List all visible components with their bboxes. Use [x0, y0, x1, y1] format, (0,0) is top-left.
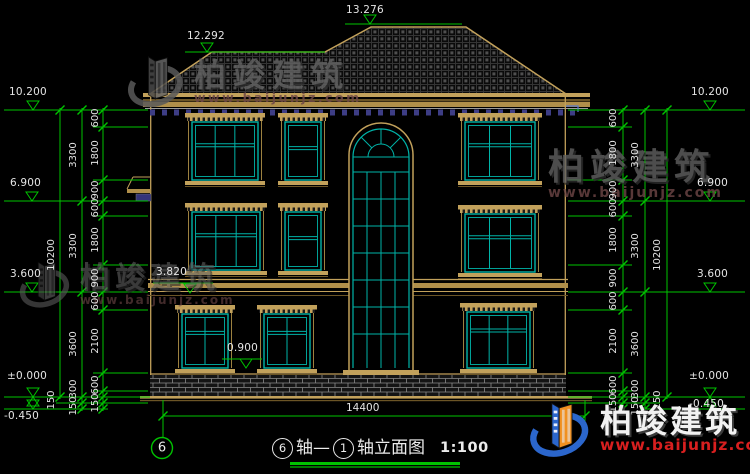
dentil-block	[426, 110, 431, 116]
title-mid-text: 轴—	[296, 440, 330, 457]
window	[185, 113, 265, 187]
level-triangle	[364, 15, 376, 24]
level-triangle	[704, 283, 716, 292]
title-scale: 1:100	[440, 441, 489, 456]
drawing-title: 6 轴— 1 轴立面图 1:100	[272, 438, 489, 459]
cad-elevation-drawing: 柏竣建筑 www.baijunjz.com 柏竣建筑 www.baijunjz.…	[0, 0, 750, 474]
window	[458, 205, 542, 279]
eave-fascia	[143, 93, 590, 112]
ground-line	[140, 396, 592, 399]
title-underline	[290, 462, 460, 465]
window	[278, 113, 328, 187]
floor-band	[148, 280, 568, 296]
window	[278, 203, 328, 277]
dentil-block	[414, 110, 419, 116]
dentil-block	[354, 110, 359, 116]
dentil-block	[546, 110, 551, 116]
dentil-block	[450, 110, 455, 116]
title-axis-a-bubble: 6	[272, 438, 293, 459]
level-triangle	[27, 101, 39, 110]
dentil-block	[438, 110, 443, 116]
arch-sill	[343, 370, 419, 375]
title-name-text: 轴立面图	[357, 440, 425, 457]
arch-window	[343, 123, 419, 375]
dentil-block	[174, 110, 179, 116]
level-bowtie	[704, 388, 716, 397]
dentil-block	[330, 110, 335, 116]
side-canopy	[127, 177, 151, 201]
dentil-block	[558, 110, 563, 116]
dentil-block	[402, 110, 407, 116]
level-triangle	[26, 283, 38, 292]
window	[175, 305, 235, 375]
dentil-block	[270, 110, 275, 116]
level-triangle	[240, 359, 252, 368]
title-axis-b-bubble: 1	[333, 438, 354, 459]
level-triangle	[704, 101, 716, 110]
level-triangle	[26, 192, 38, 201]
window	[458, 113, 542, 187]
level-triangle	[704, 192, 716, 201]
level-bowtie	[27, 388, 39, 397]
axis-bubble-number: 6	[158, 442, 166, 455]
dentil-block	[150, 110, 155, 116]
window	[257, 305, 317, 375]
level-triangle	[27, 400, 39, 409]
facade-walls	[151, 94, 566, 396]
window	[460, 303, 537, 375]
level-triangle	[201, 43, 213, 52]
dentil-block	[378, 110, 383, 116]
dentil-block	[162, 110, 167, 116]
brick-plinth	[140, 374, 592, 401]
dentil-block	[366, 110, 371, 116]
window	[185, 203, 267, 277]
drawing-svg	[0, 0, 750, 474]
title-underline-thin	[290, 466, 460, 468]
dentil-block	[390, 110, 395, 116]
dentil-block	[342, 110, 347, 116]
level-bowtie	[27, 397, 39, 406]
hip-roof	[150, 27, 566, 94]
level-bowtie	[704, 397, 716, 406]
